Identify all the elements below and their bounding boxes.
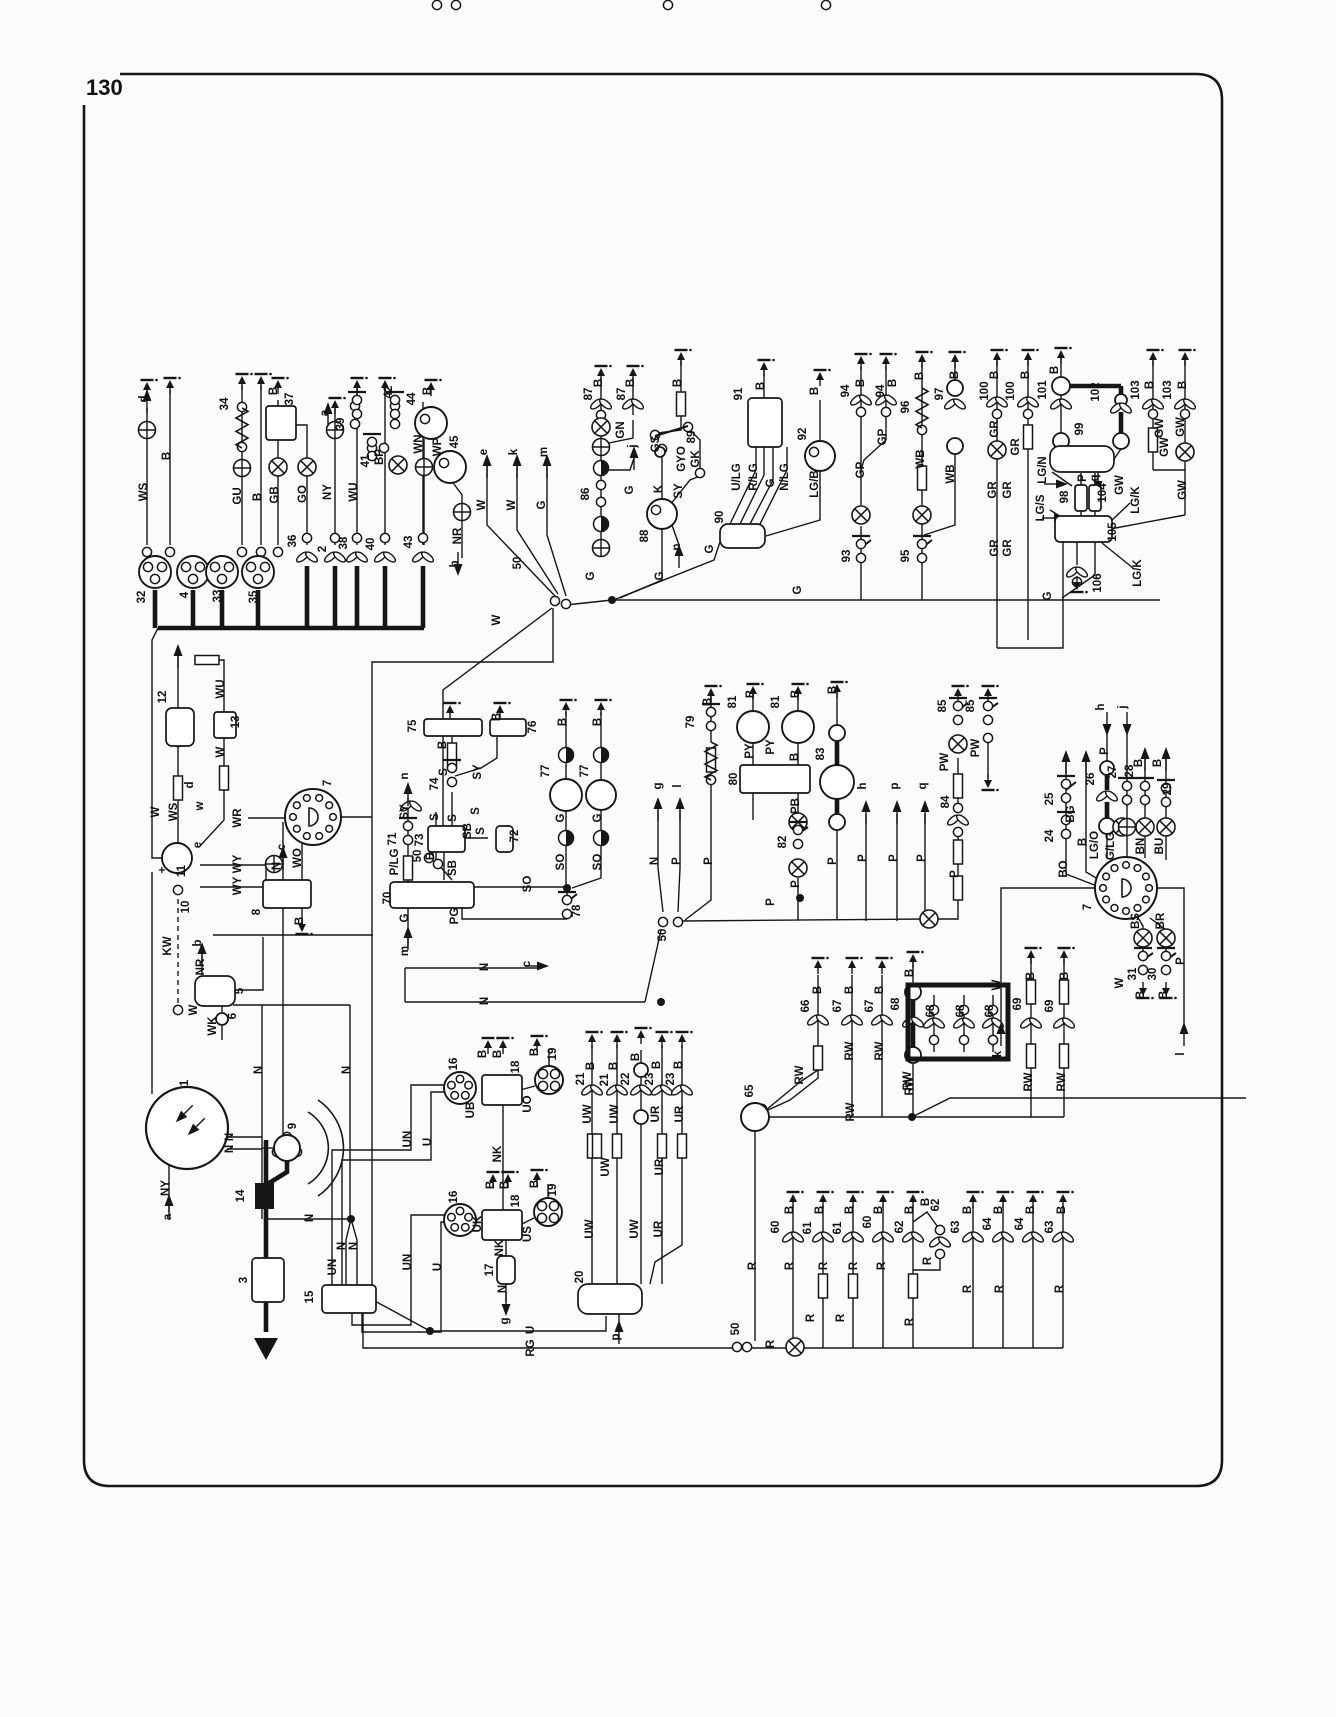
wire-label: BR <box>1155 912 1167 929</box>
pin <box>210 562 219 571</box>
wire <box>912 1098 1246 1117</box>
wire-label: SO <box>555 854 567 871</box>
wire-label: G <box>1042 591 1054 600</box>
wire-label: G/LG <box>1105 832 1117 860</box>
pin <box>461 1223 469 1231</box>
pin <box>290 814 297 821</box>
pin <box>537 1213 546 1222</box>
resistor-icon <box>1060 1044 1069 1068</box>
pin <box>456 1075 464 1083</box>
wire-label: GR <box>1010 438 1022 456</box>
wire-label: UW <box>609 1104 621 1123</box>
wire-label: n <box>399 772 411 779</box>
connector-box <box>195 976 235 1006</box>
wiring-diagram: dWSB32434GU33B35B37GBGO36aNY239WU384241B… <box>0 0 1336 1717</box>
wire-label: N <box>479 963 491 971</box>
pin <box>983 733 992 742</box>
wire-label: R <box>805 1313 817 1322</box>
wire-label: SY <box>673 483 685 499</box>
pin <box>1111 865 1118 872</box>
wire-label: B <box>672 379 684 387</box>
wire-label: P <box>1099 747 1111 755</box>
wire <box>683 919 925 921</box>
pin <box>367 437 376 446</box>
wire-label: 22 <box>620 1073 632 1086</box>
wire-label: 69 <box>1012 998 1024 1011</box>
wire-label: R <box>904 1317 916 1326</box>
wire-label: GP <box>877 428 889 445</box>
pin <box>695 468 704 477</box>
wire-label: 9 <box>287 1123 299 1129</box>
pin <box>1140 795 1149 804</box>
wire-label: 94 <box>840 384 852 397</box>
pin <box>1123 862 1130 869</box>
connector-box <box>1075 485 1087 511</box>
wire-label: B <box>1177 381 1189 389</box>
wire-label: 61 <box>832 1221 844 1234</box>
wire-label: RW <box>844 1041 856 1060</box>
round-connector <box>534 1198 562 1226</box>
wire-label: UR <box>674 1105 686 1122</box>
pin <box>983 715 992 724</box>
flow-arrow <box>1103 712 1112 736</box>
wire-label: 64 <box>1014 1217 1026 1230</box>
wire-label: B <box>855 379 867 387</box>
wire-label: G <box>536 500 548 509</box>
wire-label: WB <box>945 464 957 483</box>
wire-label: 13 <box>230 716 242 729</box>
wire <box>346 1219 351 1287</box>
connector-box <box>482 1210 522 1240</box>
wire-label: S <box>438 768 450 776</box>
wire-label: G <box>555 813 567 822</box>
connector-box <box>497 1256 515 1284</box>
wire-label: 18 <box>510 1194 522 1207</box>
pin <box>326 802 333 809</box>
pin <box>173 1005 182 1014</box>
wire-label: 75 <box>407 719 419 732</box>
resistor-icon <box>174 776 183 800</box>
resistor-icon <box>954 840 963 864</box>
wire-label: UR <box>654 1158 666 1175</box>
wire-label: B <box>492 1050 504 1058</box>
pin <box>821 0 830 9</box>
pin <box>246 562 255 571</box>
wire-label: B <box>745 690 757 698</box>
flow-arrow <box>654 797 663 821</box>
wire-label: 93 <box>841 550 853 563</box>
wire-label: 80 <box>728 773 740 786</box>
wire <box>233 937 263 990</box>
pin <box>988 1035 997 1044</box>
wire-label: 88 <box>639 529 651 542</box>
wire-label: B <box>1025 1206 1037 1214</box>
wire <box>547 466 566 596</box>
wire-label: 36 <box>287 535 299 548</box>
manual-page: dWSB32434GU33B35B37GBGO36aNY239WU384241B… <box>0 0 1336 1717</box>
wire-label: G <box>592 813 604 822</box>
pin <box>929 1035 938 1044</box>
wire-label: 30 <box>1147 968 1159 981</box>
wire-label: P/LG <box>389 849 401 876</box>
pin <box>293 825 300 832</box>
wire-label: 32 <box>136 591 148 604</box>
pin <box>237 547 246 556</box>
pin <box>1023 409 1032 418</box>
lamp-icon <box>332 550 347 564</box>
wire-label: 83 <box>815 748 827 761</box>
connector-box <box>578 1284 642 1314</box>
pin <box>420 414 429 423</box>
pin <box>732 1342 741 1351</box>
wire <box>517 466 558 594</box>
wire-label: e <box>192 842 204 848</box>
wire-label: G <box>792 585 804 594</box>
pin <box>1161 797 1170 806</box>
resistor-icon <box>849 1274 858 1298</box>
wire-label: 35 <box>248 590 260 603</box>
wire-label: U/LG <box>731 463 743 491</box>
wire-label: R <box>784 1261 796 1270</box>
pin <box>673 917 682 926</box>
resistor-icon <box>954 774 963 798</box>
wire-label: NR <box>195 958 207 975</box>
wire-label: B <box>812 986 824 994</box>
pin <box>1122 795 1131 804</box>
wire-label: 85 <box>937 699 949 712</box>
pin <box>953 715 962 724</box>
wire-label: 2 <box>317 546 329 552</box>
wire-label: 70 <box>382 892 394 905</box>
page-number: 130 <box>86 75 123 100</box>
wire-label: 100 <box>979 381 991 400</box>
wire <box>462 908 567 919</box>
wire-label: P <box>949 870 961 878</box>
wire-label: RW <box>845 1102 857 1121</box>
wire-label: 94 <box>875 384 887 397</box>
wire-label: 26 <box>1085 773 1097 786</box>
wire-label: N <box>224 1145 236 1153</box>
wire-label: G <box>704 544 716 553</box>
connector-box <box>748 398 782 447</box>
component-circle <box>947 438 963 454</box>
resistor-icon <box>678 1134 687 1158</box>
pin <box>432 0 441 9</box>
wire-label: R <box>962 1284 974 1293</box>
wire-label: B <box>1059 972 1071 980</box>
wire-label: 6 <box>227 1013 239 1019</box>
wire-label: RG <box>525 1339 537 1356</box>
wire-label: SY <box>399 804 411 820</box>
wire-label: N <box>336 1242 348 1250</box>
wire-label: N <box>253 1066 265 1074</box>
wire-label: a <box>162 1213 174 1220</box>
wire-label: 91 <box>733 387 745 400</box>
wire-label: d <box>138 395 150 402</box>
pin <box>260 562 269 571</box>
wire-label: 71 <box>387 832 399 845</box>
round-connector <box>415 407 447 439</box>
wire-label: 79 <box>685 716 697 729</box>
pin <box>150 574 159 583</box>
wire-label: 66 <box>800 1000 812 1013</box>
horn-arc <box>318 1100 343 1196</box>
wire-label: B <box>425 852 437 860</box>
pin <box>1140 781 1149 790</box>
pin <box>881 407 890 416</box>
pin <box>706 721 715 730</box>
wire-label: GK <box>690 450 702 468</box>
wire-label: WS <box>138 482 150 501</box>
wire-label: 20 <box>574 1271 586 1284</box>
wire-label: U <box>525 1326 537 1334</box>
wire-label: h <box>1095 703 1107 710</box>
wire-label: 14 <box>235 1189 247 1202</box>
wire-label: 73 <box>414 834 426 847</box>
resistor-icon <box>954 876 963 900</box>
wire-label: 104 <box>1097 483 1109 503</box>
wire-label: 50 <box>657 929 669 942</box>
wire-label: GB <box>269 486 281 503</box>
wire-label: 11 <box>176 864 188 877</box>
wire-label: P <box>703 857 715 865</box>
wire-label: c <box>276 843 288 850</box>
wire <box>351 1219 357 1287</box>
wire-label: GU <box>232 487 244 504</box>
wire-label: N <box>304 1214 316 1222</box>
resistor-icon <box>814 1046 823 1070</box>
pin <box>461 1091 469 1099</box>
wire-label: GW <box>1159 437 1171 457</box>
pin <box>1103 873 1110 880</box>
wire-label: P <box>1077 474 1089 482</box>
wire-label: B <box>608 1062 620 1070</box>
wire-label: 84 <box>940 795 952 808</box>
pin <box>403 835 412 844</box>
pin <box>451 1091 459 1099</box>
wire <box>293 425 307 545</box>
pin <box>303 833 310 840</box>
junction-dot <box>426 1327 434 1335</box>
pin <box>352 533 361 542</box>
wire-label: B <box>1025 972 1037 980</box>
lamp-icon <box>420 550 435 564</box>
wire-label: W <box>1114 977 1126 988</box>
lamp-icon <box>354 550 369 564</box>
wire-label: UW <box>600 1157 612 1176</box>
wire-label: UN <box>327 1259 339 1276</box>
pin <box>302 533 311 542</box>
wire-label: P <box>827 857 839 865</box>
wire-label: N <box>271 862 283 870</box>
wire-label: GN <box>615 421 627 438</box>
wire-label: P <box>888 854 900 862</box>
wire-label: B <box>1049 366 1061 374</box>
pin <box>1123 908 1130 915</box>
wire-label: PY <box>744 743 756 759</box>
wire-label: w <box>194 801 206 811</box>
component-circle <box>1052 377 1070 395</box>
wire-label: LG/N <box>1037 456 1049 483</box>
connector-box <box>1055 516 1112 542</box>
wire-label: 62 <box>894 1221 906 1234</box>
connector-box <box>482 1075 522 1105</box>
pin <box>326 825 333 832</box>
wire-label: 67 <box>864 1000 876 1013</box>
wire-label: GR <box>1002 539 1014 557</box>
wire-label: P <box>857 854 869 862</box>
connector-box <box>390 882 474 908</box>
wire-label: 4 <box>179 591 191 598</box>
wire-label: WY <box>232 876 244 895</box>
wire-label: N/LG <box>779 463 791 491</box>
wire-label: WN <box>413 434 425 453</box>
resistor-icon <box>195 656 219 665</box>
wire-label: G <box>399 913 411 922</box>
lamp-icon <box>952 397 967 411</box>
wire-label: UK <box>472 1215 484 1232</box>
wire-label: BO <box>1058 860 1070 877</box>
wire-label: UR <box>653 1220 665 1237</box>
wire-label: B <box>844 1206 856 1214</box>
wire <box>1110 503 1130 522</box>
wire-label: U <box>432 1263 444 1271</box>
wire-label: S <box>429 813 441 821</box>
resistor-icon <box>658 1134 667 1158</box>
wire-label: k <box>508 448 520 455</box>
wire-label: B <box>702 698 714 706</box>
pin <box>793 825 802 834</box>
wire-label: BP <box>374 449 386 465</box>
wire-label: 63 <box>1044 1221 1056 1234</box>
pin <box>550 1081 559 1090</box>
junction-dot <box>563 884 571 892</box>
flow-arrow <box>1123 712 1132 736</box>
wire-label: P <box>671 857 683 865</box>
wire-label: B <box>161 452 173 460</box>
pin <box>448 1213 456 1221</box>
wire-label: 50 <box>412 850 424 863</box>
wire-label: + <box>157 866 169 873</box>
wire-label: R <box>765 1339 777 1348</box>
wire-label: 81 <box>727 695 739 708</box>
component-circle <box>829 725 845 741</box>
pin <box>935 1225 944 1234</box>
pin <box>1148 409 1157 418</box>
wire-label: 15 <box>304 1290 316 1303</box>
wire-label: c <box>521 960 533 967</box>
fusible-link <box>255 1183 274 1209</box>
wire-label: B <box>904 969 916 977</box>
wire-label: N <box>348 1242 360 1250</box>
wire-label: 60 <box>862 1216 874 1229</box>
pin <box>856 553 865 562</box>
pin <box>451 1223 459 1231</box>
pin <box>143 562 152 571</box>
pin <box>663 0 672 9</box>
wire-label: GW <box>1114 475 1126 495</box>
wire-label: 39 <box>335 418 347 431</box>
junction-dot <box>657 998 665 1006</box>
wire-label: N <box>497 1285 509 1293</box>
pin <box>352 395 361 404</box>
wire-label: N <box>479 997 491 1005</box>
wire-label: 16 <box>448 1191 460 1204</box>
wire-label: GR <box>989 420 1001 438</box>
wire-label: B <box>1158 991 1170 999</box>
wire-label: B <box>437 741 449 749</box>
wire-label: R <box>835 1313 847 1322</box>
wire-label: GR <box>989 539 1001 557</box>
wire-label: NK <box>492 1145 504 1162</box>
pin <box>224 562 233 571</box>
wire-label: RW <box>794 1065 806 1084</box>
wire-label: B <box>1144 381 1156 389</box>
resistor-icon <box>593 1134 602 1158</box>
resistor-icon <box>819 1274 828 1298</box>
wire-label: G <box>585 571 597 580</box>
wire-label: 1 <box>179 1079 191 1086</box>
resistor-icon <box>909 1274 918 1298</box>
wire-label: 68 <box>955 1004 967 1017</box>
pin <box>456 1207 464 1215</box>
wire-label: NR <box>452 527 464 544</box>
round-connector <box>782 711 814 743</box>
wire-label: NY <box>160 1180 172 1196</box>
flow-arrow <box>513 454 522 478</box>
wire-label: 10 <box>180 901 192 914</box>
wire-label: WB <box>915 449 927 468</box>
pin <box>562 895 571 904</box>
pin <box>935 1249 944 1258</box>
pin <box>253 574 262 583</box>
connector-box <box>720 524 765 548</box>
wire <box>487 466 555 596</box>
wire-label: UB <box>465 1102 477 1119</box>
wire-label: p <box>889 782 901 789</box>
junction-dot <box>608 596 616 604</box>
pin <box>1100 885 1107 892</box>
wire-label: 92 <box>797 428 809 441</box>
wire-label: B <box>1056 1206 1068 1214</box>
wire-label: B <box>485 1181 497 1189</box>
wire-label: UW <box>584 1219 596 1238</box>
wire-label: B <box>814 1206 826 1214</box>
junction-dot <box>908 1113 916 1121</box>
wire-label: 72 <box>509 830 521 843</box>
wire-label: 102 <box>1090 382 1102 401</box>
wire <box>430 1316 606 1331</box>
wire-label: WK <box>207 1016 219 1036</box>
pin <box>917 539 926 548</box>
wire-label: KW <box>162 936 174 955</box>
pin <box>538 1081 547 1090</box>
pin <box>1134 865 1141 872</box>
coil-resistor-icon <box>916 388 928 428</box>
wire-label: UR <box>650 1105 662 1122</box>
wire-label: 18 <box>510 1060 522 1073</box>
switch-lever <box>655 426 688 436</box>
lamp-icon <box>937 1235 952 1249</box>
wire-label: WY <box>232 854 244 873</box>
pin <box>465 1081 473 1089</box>
wire-label: 98 <box>1059 490 1071 503</box>
wire-label: B <box>844 986 856 994</box>
lamp-icon <box>382 550 397 564</box>
wire-label: GO <box>297 485 309 503</box>
component-circle <box>634 1110 648 1124</box>
wire-label: SO <box>522 876 534 893</box>
